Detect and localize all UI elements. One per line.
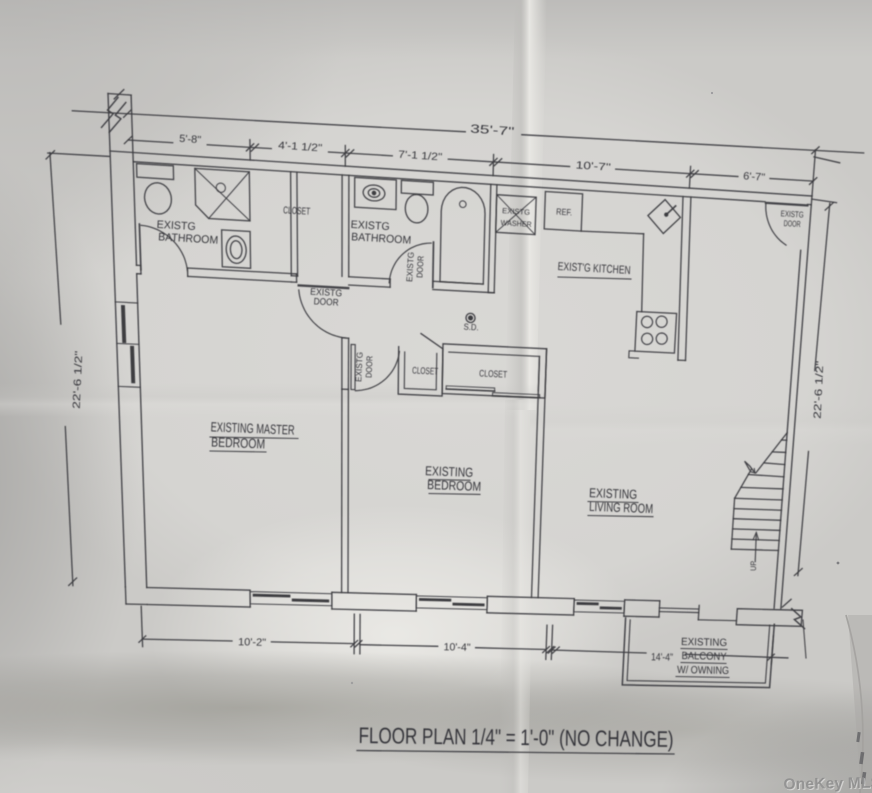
svg-text:EXISTING: EXISTING bbox=[681, 636, 727, 649]
svg-text:OneKey MLS: OneKey MLS bbox=[783, 775, 872, 793]
svg-text:UP: UP bbox=[749, 561, 758, 571]
svg-text:22'-6 1/2": 22'-6 1/2" bbox=[71, 350, 86, 409]
svg-text:10'-4": 10'-4" bbox=[443, 641, 471, 654]
svg-text:BEDROOM: BEDROOM bbox=[427, 477, 481, 494]
svg-text:DOOR: DOOR bbox=[313, 296, 339, 308]
svg-text:EXISTG: EXISTG bbox=[502, 206, 531, 217]
svg-text:WASHER: WASHER bbox=[500, 218, 532, 229]
svg-text:BALCONY: BALCONY bbox=[681, 650, 726, 663]
svg-text:DOOR: DOOR bbox=[783, 218, 801, 229]
svg-text:DOOR: DOOR bbox=[414, 256, 425, 279]
svg-text:LIVING ROOM: LIVING ROOM bbox=[589, 499, 653, 516]
svg-text:CLOSET: CLOSET bbox=[412, 365, 439, 377]
svg-text:CLOSET: CLOSET bbox=[479, 368, 508, 380]
svg-text:10'-7": 10'-7" bbox=[575, 159, 611, 173]
svg-text:6'-7": 6'-7" bbox=[743, 170, 766, 183]
svg-text:S.D.: S.D. bbox=[463, 322, 478, 333]
svg-text:DOOR: DOOR bbox=[363, 356, 374, 378]
svg-text:35'-7": 35'-7" bbox=[470, 122, 515, 139]
svg-text:BEDROOM: BEDROOM bbox=[211, 434, 266, 451]
svg-text:REF.: REF. bbox=[556, 207, 573, 218]
svg-text:CLOSET: CLOSET bbox=[283, 205, 311, 218]
svg-text:5'-8": 5'-8" bbox=[179, 133, 202, 146]
svg-text:FLOOR PLAN 1/4" = 1'-0" (NO C: FLOOR PLAN 1/4" = 1'-0" (NO CHANGE) bbox=[358, 723, 673, 752]
svg-text:14'-4": 14'-4" bbox=[651, 651, 673, 663]
svg-text:10'-2": 10'-2" bbox=[238, 636, 267, 649]
svg-text:W/ OWNING: W/ OWNING bbox=[677, 664, 729, 677]
